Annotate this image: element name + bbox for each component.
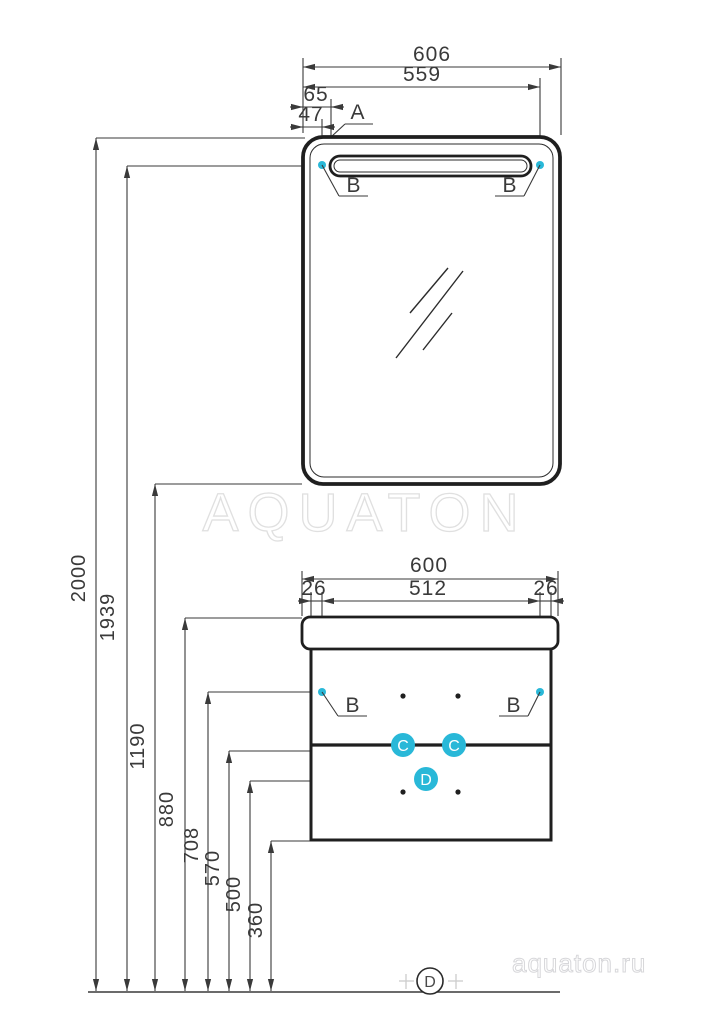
dim-label-600: 600	[410, 554, 448, 577]
mirror-frame	[303, 137, 560, 484]
dim-label-26-left: 26	[301, 577, 326, 600]
mirror-b-label-right: B	[502, 174, 517, 197]
dim-label-559: 559	[403, 63, 441, 86]
cabinet-countertop	[302, 617, 558, 649]
cabinet-front-view	[302, 617, 558, 840]
marker-d-label: D	[420, 772, 432, 789]
cabinet-b-label-right: B	[506, 694, 521, 717]
mirror-light-slot	[330, 156, 531, 176]
dim-label-708: 708	[181, 827, 203, 863]
dim-label-512: 512	[409, 577, 447, 600]
dim-label-500: 500	[223, 876, 245, 912]
site-watermark: aquaton.ru	[512, 948, 646, 978]
dim-label-880: 880	[156, 791, 178, 827]
marker-c-left-label: C	[397, 738, 409, 755]
drawing-svg: AQUATON 2000 1939 1190 880 708 570 500 3…	[0, 0, 723, 1024]
cabinet-b-label-left: B	[345, 694, 360, 717]
floor-d-label: D	[424, 974, 436, 991]
point-a-callout	[331, 124, 373, 137]
point-a-label: A	[350, 101, 365, 124]
dim-label-2000: 2000	[68, 554, 90, 603]
dim-label-1939: 1939	[97, 593, 119, 642]
dot-lower-left	[400, 789, 405, 794]
floor-d-marker: D	[399, 968, 463, 994]
dim-label-570: 570	[202, 850, 224, 886]
dim-label-26-right: 26	[533, 577, 558, 600]
dot-lower-right	[455, 789, 460, 794]
dim-label-360: 360	[245, 902, 267, 938]
marker-c-right-label: C	[448, 738, 460, 755]
dot-upper-left	[400, 693, 405, 698]
dot-upper-right	[455, 693, 460, 698]
mirror-front-view	[303, 137, 560, 484]
dim-label-1190: 1190	[127, 722, 149, 769]
brand-watermark: AQUATON	[202, 483, 527, 543]
dim-label-47: 47	[298, 103, 323, 126]
point-a-leader	[331, 124, 345, 137]
mirror-b-label-left: B	[346, 174, 361, 197]
technical-drawing-page: AQUATON 2000 1939 1190 880 708 570 500 3…	[0, 0, 723, 1024]
